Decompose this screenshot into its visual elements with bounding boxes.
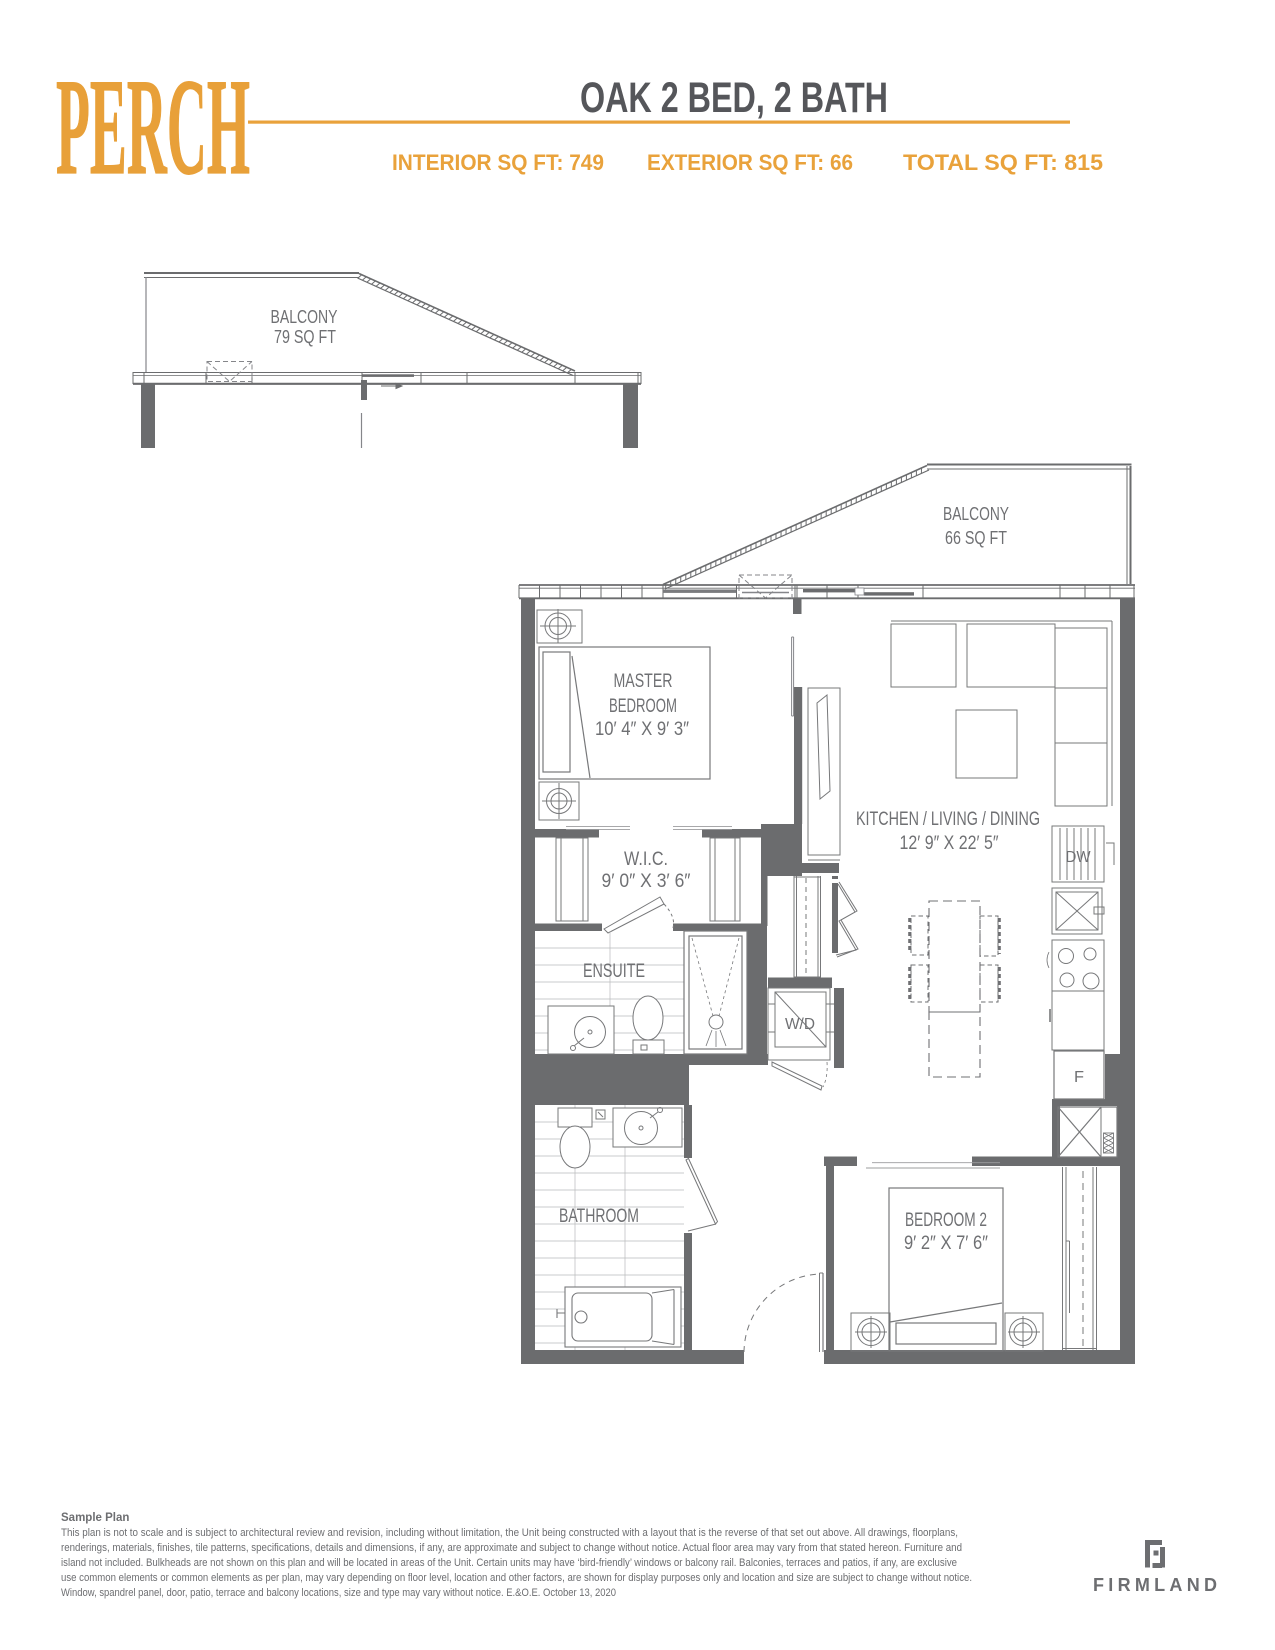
svg-text:BATHROOM: BATHROOM <box>559 1206 639 1227</box>
svg-text:BEDROOM 2: BEDROOM 2 <box>905 1210 987 1231</box>
svg-text:79 SQ FT: 79 SQ FT <box>274 327 336 347</box>
svg-text:BALCONY: BALCONY <box>943 504 1009 524</box>
svg-text:Sample Plan: Sample Plan <box>61 1512 129 1524</box>
svg-text:ENSUITE: ENSUITE <box>583 961 645 982</box>
svg-text:F: F <box>1074 1069 1084 1086</box>
svg-text:DW: DW <box>1066 849 1092 866</box>
svg-text:Window, spandrel panel, door,: Window, spandrel panel, door, patio, ter… <box>61 1587 616 1599</box>
svg-text:OAK 2 BED, 2 BATH: OAK 2 BED, 2 BATH <box>580 74 888 122</box>
svg-text:renderings, materials, finishe: renderings, materials, finishes, tile pa… <box>61 1542 962 1554</box>
svg-text:KITCHEN / LIVING / DINING: KITCHEN / LIVING / DINING <box>856 809 1040 830</box>
svg-text:EXTERIOR SQ FT: 66: EXTERIOR SQ FT: 66 <box>647 150 853 175</box>
svg-text:W.I.C.: W.I.C. <box>624 849 668 870</box>
svg-text:This plan is not to scale and: This plan is not to scale and is subject… <box>61 1527 958 1539</box>
svg-text:12′ 9″ X 22′ 5″: 12′ 9″ X 22′ 5″ <box>900 833 999 854</box>
svg-text:W/D: W/D <box>785 1016 815 1033</box>
svg-text:9′ 2″ X 7′ 6″: 9′ 2″ X 7′ 6″ <box>904 1233 988 1254</box>
svg-text:10′ 4″ X 9′ 3″: 10′ 4″ X 9′ 3″ <box>595 719 689 740</box>
svg-text:9′ 0″ X 3′ 6″: 9′ 0″ X 3′ 6″ <box>602 871 691 892</box>
svg-text:BALCONY: BALCONY <box>271 307 338 327</box>
svg-text:FIRMLAND: FIRMLAND <box>1093 1575 1217 1595</box>
svg-text:TOTAL SQ FT: 815: TOTAL SQ FT: 815 <box>903 150 1103 175</box>
svg-text:island not included. Bulkheads: island not included. Bulkheads are not s… <box>61 1557 957 1569</box>
svg-text:INTERIOR SQ FT: 749: INTERIOR SQ FT: 749 <box>392 150 604 175</box>
svg-text:use common elements or common: use common elements or common elements a… <box>61 1572 972 1584</box>
svg-text:MASTER: MASTER <box>614 671 673 692</box>
svg-text:BEDROOM: BEDROOM <box>609 696 677 717</box>
svg-text:66 SQ FT: 66 SQ FT <box>945 528 1007 548</box>
svg-text:PERCH: PERCH <box>56 50 250 203</box>
